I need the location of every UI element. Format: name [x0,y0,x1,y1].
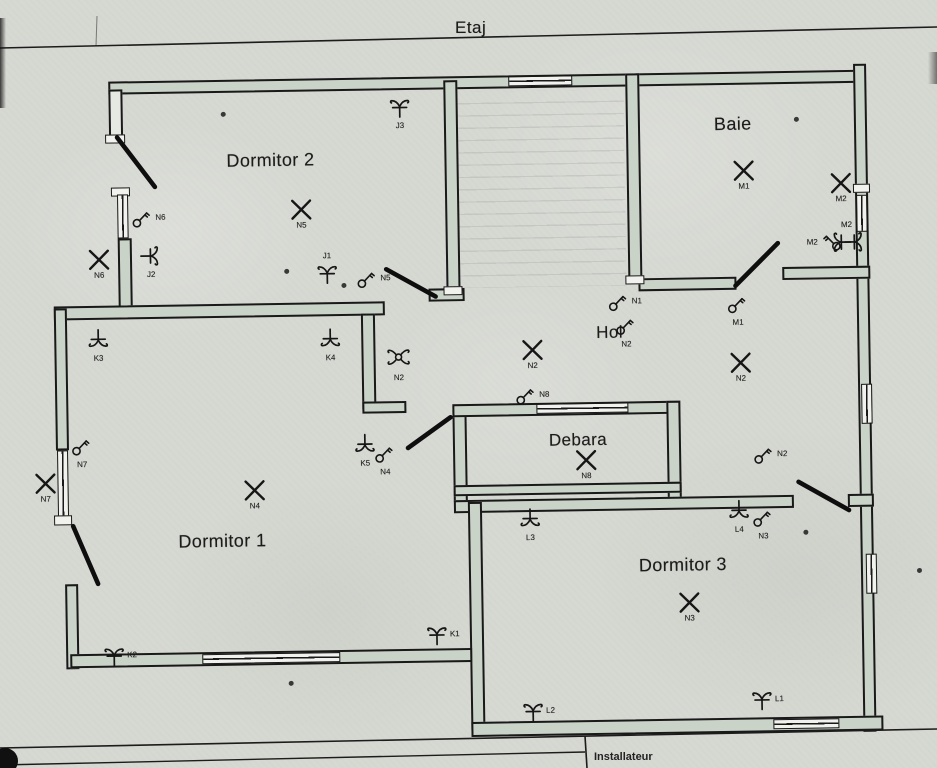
switch-label: L4 [735,525,744,534]
switch-label: N2 [621,339,631,348]
switch-label: L3 [526,533,535,542]
window [536,402,628,413]
switch-label: M1 [732,318,743,327]
ink-dot [289,681,294,686]
door-leaf-baie [735,243,779,286]
switch-label: L2 [546,706,555,715]
lamp-label: M2 [836,194,847,203]
wall [638,277,736,292]
switch-label: M2 [841,220,852,229]
switch-label: K5 [360,459,370,468]
window [866,554,878,594]
scanned-floor-plan: Etaj Installateur [0,0,937,768]
switch-label: N8 [539,390,549,399]
window [861,384,873,424]
room-label-dormitor3: Dormitor 3 [639,554,727,576]
switch-label: N2 [394,373,404,382]
wall [108,89,123,137]
switch-label: N5 [380,273,390,282]
switch-label: N1 [632,296,642,305]
lamp-label: N5 [296,221,306,230]
wall [54,308,69,450]
switch-label: J3 [396,121,405,130]
ink-dot [341,283,346,288]
window [508,75,572,86]
switch-label: K4 [326,353,336,362]
switch-label: J1 [323,251,332,260]
wall [468,502,486,730]
door-leaf-dormitor2-balcony [117,137,155,188]
room-label-dormitor2: Dormitor 2 [226,149,314,171]
wall-cap [625,275,644,284]
switch-label: K1 [450,629,460,638]
switch-label: K3 [94,354,104,363]
door-leaf-dormitor3 [799,481,849,511]
ink-dot [917,568,922,573]
wall [54,301,385,320]
ink-dot [284,269,289,274]
lamp-label: N7 [41,495,51,504]
wall [454,482,682,497]
lamp-label: M1 [738,182,749,191]
lamp-label: N2 [736,374,746,383]
wall [625,73,642,279]
room-label-baie: Baie [714,114,752,136]
lamp-label: N6 [94,271,104,280]
wall-cap [443,286,462,295]
switch-label: N3 [758,531,768,540]
wall [362,401,406,414]
wall-cap [105,134,125,143]
lamp-label: N2 [528,361,538,370]
ink-dot [794,117,799,122]
wall [118,238,133,309]
room-label-debara: Debara [549,430,607,451]
staircase [457,90,626,289]
lamp-label: N3 [685,613,695,622]
window [773,718,839,729]
ink-dot [221,112,226,117]
wall-cap [54,515,72,525]
wall [848,494,874,507]
ink-dot [803,530,808,535]
floor-title: Etaj [455,18,486,38]
switch-label: K2 [127,650,137,659]
lamp-label: N8 [581,471,591,480]
switch-label: M2 [807,237,818,246]
switch-label: N2 [777,449,787,458]
wall [361,313,377,409]
window [856,195,868,232]
wall-cap [853,184,870,193]
door-leaf-dormitor1 [408,417,451,448]
switch-label: N7 [77,460,87,469]
door-leaf-dormitor1-balcony [73,526,98,584]
switch-label: L1 [775,694,784,703]
window [117,194,129,238]
floor-plan: Dormitor 2 Baie Hol Debara Dormitor 1 Do… [0,0,937,768]
room-label-dormitor1: Dormitor 1 [178,530,266,552]
switch-label: N4 [380,467,390,476]
installer-field-label: Installateur [594,751,653,763]
wall [782,266,870,280]
window [57,450,69,517]
lamp-label: N4 [250,501,260,510]
switch-label: J2 [147,270,156,279]
switch-label: N6 [155,213,165,222]
